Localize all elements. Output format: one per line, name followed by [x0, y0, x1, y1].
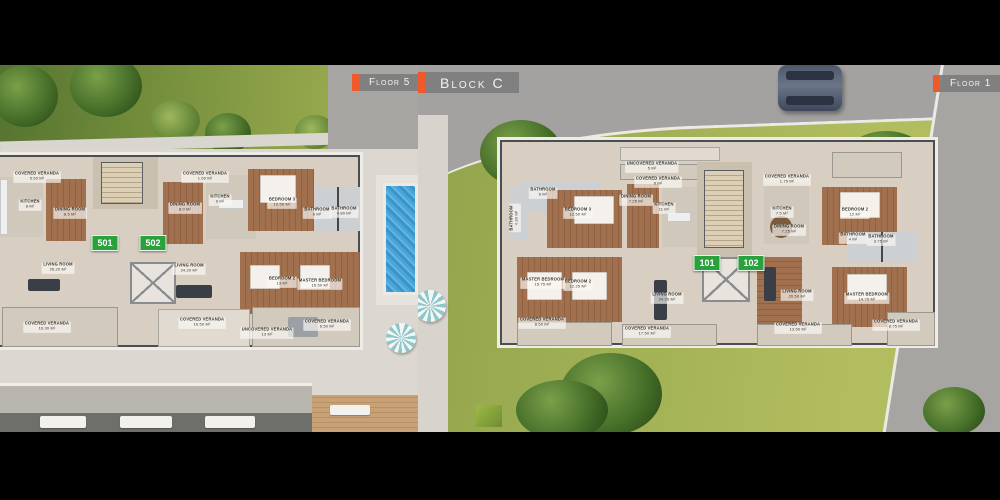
floor-5-tag-label: Floor 5	[359, 74, 420, 91]
unit-badge-502[interactable]: 502	[139, 235, 166, 251]
tree	[516, 380, 608, 432]
tree	[923, 387, 985, 432]
room-label: BATHROOM3.75 m²	[867, 234, 895, 245]
floor1-photo-panel: UNCOVERED VERANDA5 m²COVERED VERANDA8 m²…	[418, 65, 1000, 432]
room-label: BATHROOM6 m²	[529, 187, 557, 198]
room-label: LIVING ROOM24.20 m²	[173, 263, 206, 274]
room-label: KITCHEN9 m²	[209, 194, 232, 205]
elevator-shaft	[130, 262, 176, 304]
tag-accent-bar	[352, 74, 359, 91]
unit-badge-501[interactable]: 501	[91, 235, 118, 251]
room-label: MASTER BEDROOM14.75 m²	[844, 292, 889, 303]
room-label: DINING ROOM7.25 m²	[772, 224, 805, 235]
sofa	[764, 267, 776, 301]
floor-1-tag[interactable]: Floor 1	[933, 75, 1000, 92]
covered-veranda	[832, 152, 902, 178]
room-label: COVERED VERANDA5.50 m²	[13, 171, 60, 182]
sunbed	[40, 416, 86, 428]
floor5-photo-panel: COVERED VERANDA5.50 m²KITCHEN8 m²DINING …	[0, 65, 418, 432]
room-label: UNCOVERED VERANDA5 m²	[625, 161, 679, 172]
sofa	[176, 285, 212, 298]
tag-accent-bar	[418, 72, 426, 93]
swimming-pool	[383, 183, 418, 295]
room-label: COVERED VERANDA8.75 m²	[872, 319, 919, 330]
floor-1-tag-label: Floor 1	[940, 75, 1000, 92]
room-label: MASTER BEDROOM15.75 m²	[520, 277, 565, 288]
block-c-tag[interactable]: Block C	[418, 72, 519, 93]
staircase	[101, 162, 143, 204]
walkway	[418, 115, 448, 432]
room-label: BEDROOM 212 m²	[840, 207, 870, 218]
room-label: MASTER BEDROOM16.50 m²	[297, 278, 342, 289]
room-label: LIVING ROOM20.50 m²	[781, 289, 814, 300]
room-label: BEDROOM 212.25 m²	[563, 279, 593, 290]
room-label: BATHROOM4 m²	[839, 232, 867, 243]
sunbed	[330, 405, 370, 415]
car	[778, 65, 842, 111]
room-label: DINING ROOM8.0 m²	[168, 202, 201, 213]
room-label: KITCHEN8 m²	[19, 199, 42, 210]
parasol-umbrella	[386, 323, 416, 353]
room-label: COVERED VERANDA8 m²	[634, 176, 681, 187]
room-label: DINING ROOM7.25 m²	[619, 194, 652, 205]
room-label: BEDROOM 213 m²	[267, 276, 297, 287]
screenshot-canvas: COVERED VERANDA5.50 m²KITCHEN8 m²DINING …	[0, 0, 1000, 500]
room-label: DINING ROOM8.5 m²	[53, 207, 86, 218]
room-label: BEDROOM 312.50 m²	[563, 207, 593, 218]
room-label: LIVING ROOM26.20 m²	[42, 262, 75, 273]
floor-5-tag[interactable]: Floor 5	[352, 74, 420, 91]
room-label: COVERED VERANDA8.50 m²	[518, 317, 565, 328]
room-label: COVERED VERANDA1.75 m²	[763, 174, 810, 185]
unit-badge-102[interactable]: 102	[737, 255, 764, 271]
room-label: UNCOVERED VERANDA13 m²	[240, 327, 294, 338]
room-label: KITCHEN7.5 m²	[771, 206, 794, 217]
room-label: KITCHEN11 m²	[653, 202, 676, 213]
staircase	[704, 170, 744, 248]
green-planter	[476, 405, 502, 427]
room-label: COVERED VERANDA16.50 m²	[178, 317, 225, 328]
room-label: BATHROOM4.80 m²	[330, 206, 358, 217]
room-label: LIVING ROOM24.25 m²	[651, 292, 684, 303]
room-label: BATHROOM6 m²	[303, 207, 331, 218]
room-label: COVERED VERANDA1.50 m²	[181, 171, 228, 182]
sofa	[28, 279, 60, 291]
unit-badge-101[interactable]: 101	[693, 255, 720, 271]
uncovered-veranda	[620, 147, 720, 161]
room-label: COVERED VERANDA13.50 m²	[774, 322, 821, 333]
room-label: BEDROOM 312.50 m²	[267, 197, 297, 208]
block-c-tag-label: Block C	[426, 72, 519, 93]
room-label: BATHROOM4.30 m²	[509, 204, 520, 232]
room-label: COVERED VERANDA16.30 m²	[23, 321, 70, 332]
sunbed	[205, 416, 255, 428]
tag-accent-bar	[933, 75, 940, 92]
room-label: COVERED VERANDA17.50 m²	[623, 326, 670, 337]
room-label: COVERED VERANDA6.50 m²	[303, 319, 350, 330]
kitchen-counter	[0, 179, 8, 235]
sunbed	[120, 416, 172, 428]
